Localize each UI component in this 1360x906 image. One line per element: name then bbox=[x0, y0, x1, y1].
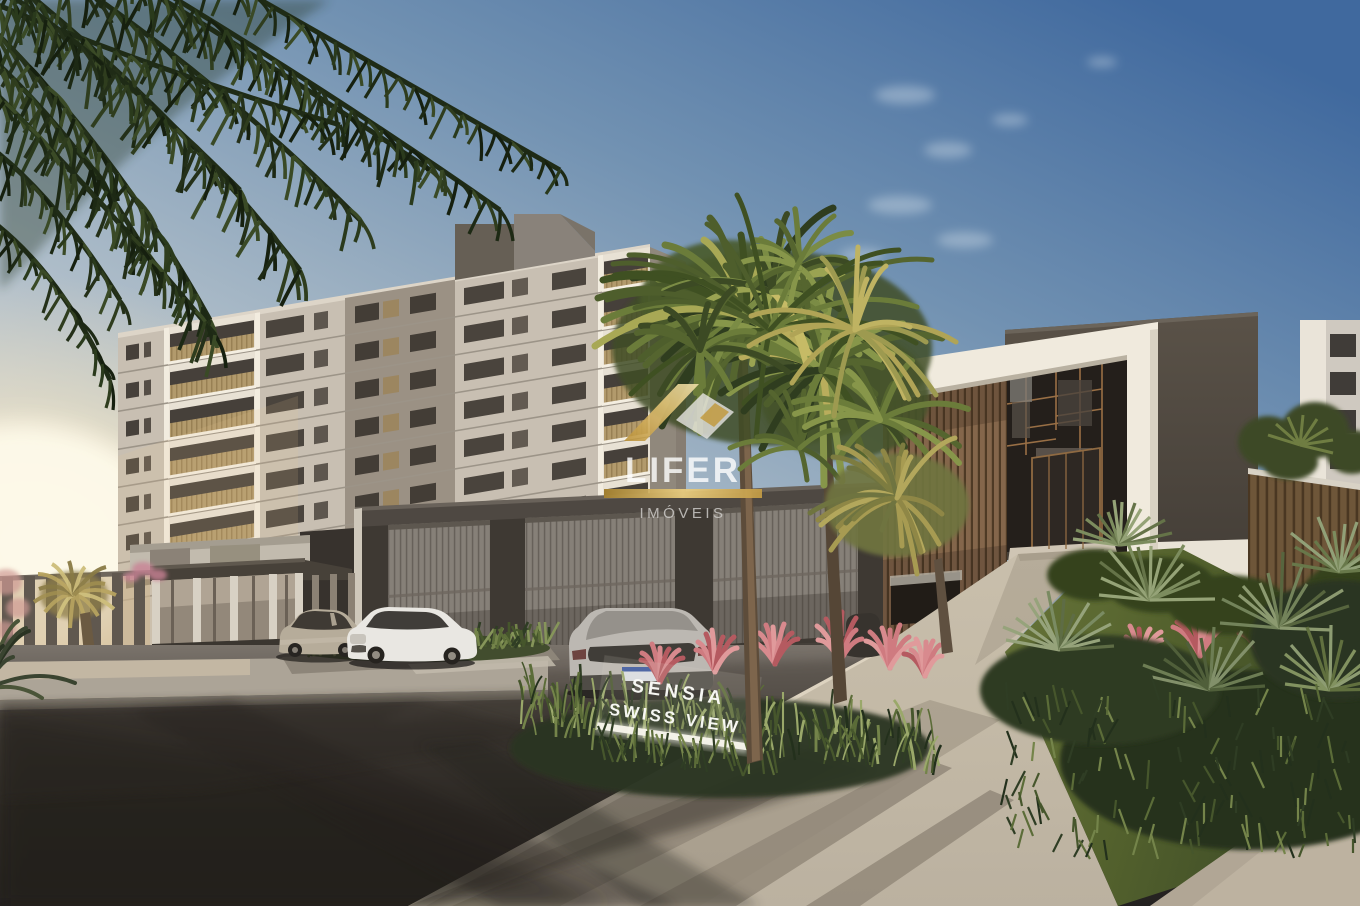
svg-text:LIFER: LIFER bbox=[625, 451, 741, 490]
svg-text:IMÓVEIS: IMÓVEIS bbox=[639, 505, 726, 522]
